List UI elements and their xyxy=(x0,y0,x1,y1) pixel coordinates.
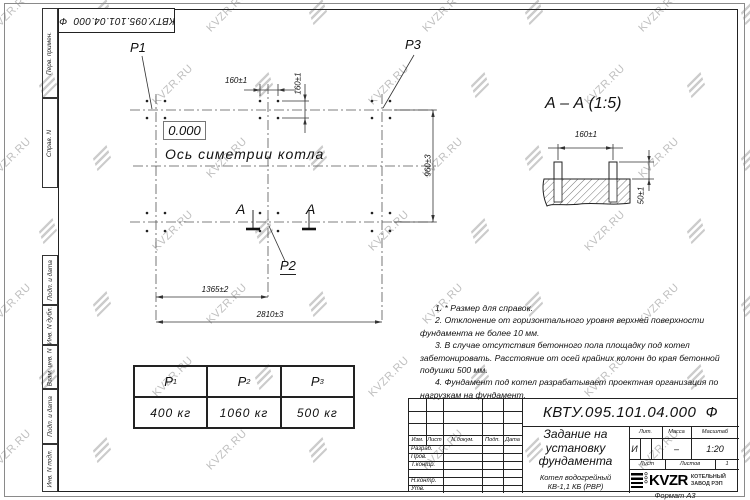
tb-row-razrab: Разраб. xyxy=(409,445,443,453)
tb-mass-label: Масса xyxy=(662,426,691,438)
product-line2: КВ-1,1 КБ (РВР) xyxy=(548,482,604,491)
strip-label: Подп. и дата xyxy=(47,396,54,437)
tb-row-tkontr: Т.контр. xyxy=(409,461,443,469)
strip-inv-podl: Инв. N подл. xyxy=(42,444,58,492)
tb-row-utv: Утв. xyxy=(409,485,443,493)
dim-160-top: 160±1 xyxy=(225,76,247,85)
technical-notes: 1. * Размер для справок. 2. Отклонение о… xyxy=(420,302,741,401)
product-line1: Котел водогрейный xyxy=(540,473,611,482)
header-base: P xyxy=(164,374,173,389)
load-point-p2-label: P2 xyxy=(280,258,296,275)
load-table: P1 P2 P3 400 кг 1060 кг 500 кг xyxy=(133,365,355,429)
company-name: КОТЕЛЬНЫЙ ЗАВОД РЭП xyxy=(691,474,726,487)
drawing-sheet: KVZR.RUKVZR.RUKVZR.RUKVZR.RUKVZR.RUKVZR.… xyxy=(0,0,750,500)
load-table-header: P2 xyxy=(207,366,280,397)
header-sub: 1 xyxy=(173,377,177,386)
dim-960: 960±3 xyxy=(424,148,433,184)
section-dim-160: 160±1 xyxy=(561,130,611,139)
tb-col-list: Лист xyxy=(426,435,443,445)
section-letter-right: A xyxy=(306,201,315,217)
strip-podp-data-1: Подп. и дата xyxy=(42,255,58,305)
load-table-header: P3 xyxy=(281,366,354,397)
tb-col-data: Дата xyxy=(503,435,522,445)
tb-lit-value: И xyxy=(629,438,640,459)
tb-sheets-value: 1 xyxy=(715,459,739,469)
tb-row-prov: Пров. xyxy=(409,453,443,461)
company-logo: ООО KVZR КОТЕЛЬНЫЙ ЗАВОД РЭП xyxy=(631,470,737,491)
top-designation-stamp: КВТУ.095.101.04.000 Ф xyxy=(58,8,175,33)
strip-label: Взам. инв. N xyxy=(47,348,54,386)
load-table-value: 1060 кг xyxy=(207,397,280,428)
axis-of-symmetry-label: Ось симетрии котла xyxy=(165,146,324,162)
note-item: 1. * Размер для справок. xyxy=(420,302,741,314)
header-sub: 2 xyxy=(246,377,250,386)
header-sub: 3 xyxy=(320,377,324,386)
strip-label: Справ. N xyxy=(47,129,54,156)
tb-mass-value: – xyxy=(662,438,691,459)
logo-kvzr-text: KVZR xyxy=(649,472,688,489)
load-table-value: 500 кг xyxy=(281,397,354,428)
strip-inv-dubl: Инв. N дубл. xyxy=(42,305,58,345)
tb-col-ndocum: N докум. xyxy=(443,435,482,445)
tb-col-izm: Изм. xyxy=(409,435,426,445)
dim-2810: 2810±3 xyxy=(245,310,295,319)
dim-160-vertical: 160±1 xyxy=(294,67,303,101)
tb-sheet-label: Лист xyxy=(629,459,665,469)
logo-ooo-text: ООО xyxy=(644,478,649,484)
tb-col-podp: Подп. xyxy=(482,435,503,445)
format-label: Формат А3 xyxy=(630,491,720,500)
tb-sheets-label: Листов xyxy=(665,459,715,469)
note-item: 2. Отклонение от горизонтального уровня … xyxy=(420,314,741,339)
elevation-value: 0.000 xyxy=(168,123,201,138)
load-table-header: P1 xyxy=(134,366,207,397)
header-base: P xyxy=(311,374,320,389)
tb-scale-value: 1:20 xyxy=(691,438,739,459)
tb-scale-label: Масштаб xyxy=(691,426,739,438)
strip-podp-data-2: Подп. и дата xyxy=(42,389,58,444)
strip-sprav-n: Справ. N xyxy=(42,98,58,188)
load-point-p3-label: P3 xyxy=(405,37,421,52)
header-base: P xyxy=(238,374,247,389)
load-table-value: 400 кг xyxy=(134,397,207,428)
tb-row-nkontr: Н.контр. xyxy=(409,477,443,485)
section-dim-50: 50±1 xyxy=(637,179,646,213)
company-line2: ЗАВОД РЭП xyxy=(691,481,726,488)
strip-label: Перв. примен. xyxy=(47,31,54,74)
strip-vzam-inv: Взам. инв. N xyxy=(42,345,58,389)
dim-1365: 1365±2 xyxy=(190,285,240,294)
tb-designation: КВТУ.095.101.04.000 Ф xyxy=(522,399,739,426)
section-letter-left: A xyxy=(236,201,245,217)
section-view-title: А – А (1:5) xyxy=(545,95,621,113)
strip-label: Подп. и дата xyxy=(47,260,54,301)
tb-lit-label: Лит. xyxy=(629,426,662,438)
elevation-mark: 0.000 xyxy=(163,121,206,140)
tb-product: Котел водогрейный КВ-1,1 КБ (РВР) xyxy=(522,471,629,493)
load-point-p1-label: P1 xyxy=(130,40,146,55)
tb-doc-title: Задание на установку фундамента xyxy=(522,426,629,471)
tb-row-blank xyxy=(409,469,443,477)
note-item: 3. В случае отсутствия бетонного пола пл… xyxy=(420,339,741,376)
company-line1: КОТЕЛЬНЫЙ xyxy=(691,474,726,481)
strip-label: Инв. N дубл. xyxy=(47,306,54,344)
logo-mark-icon xyxy=(631,473,643,488)
top-designation-text: КВТУ.095.101.04.000 Ф xyxy=(59,15,175,26)
strip-perv-primen: Перв. примен. xyxy=(42,8,58,98)
title-block: Изм. Лист N докум. Подп. Дата Разраб. Пр… xyxy=(408,398,738,492)
strip-label: Инв. N подл. xyxy=(47,449,54,487)
